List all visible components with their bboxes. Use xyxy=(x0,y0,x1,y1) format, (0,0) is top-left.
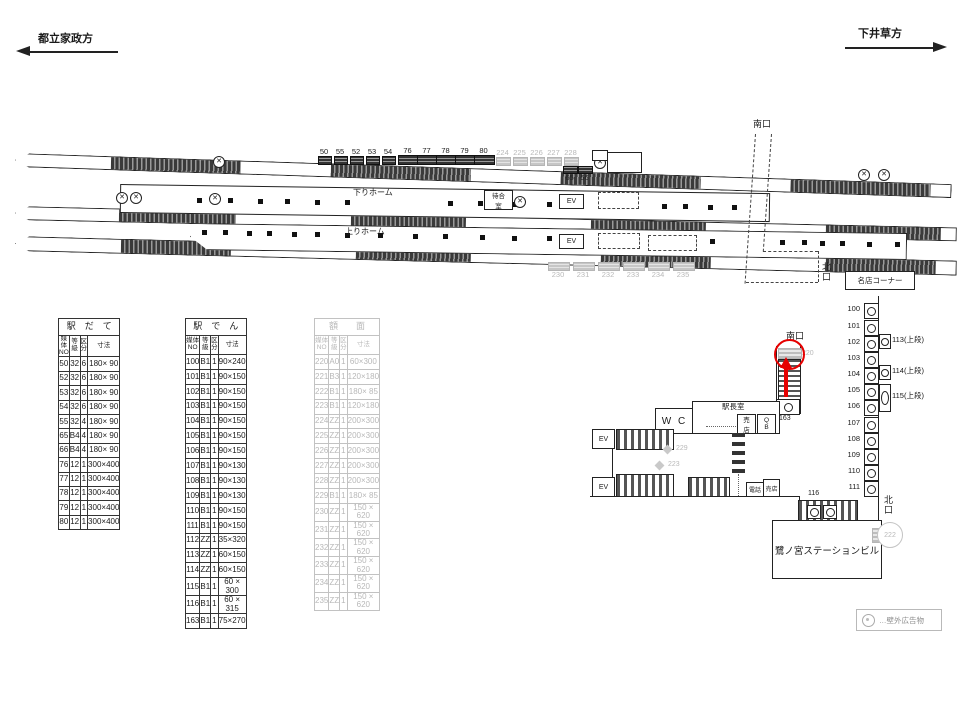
ad-position-box xyxy=(398,155,419,165)
roller-box xyxy=(807,505,821,519)
stair-opening xyxy=(648,235,697,251)
circled-x-icon xyxy=(213,156,225,168)
stairs-middle xyxy=(688,477,730,497)
roller-icon xyxy=(867,324,876,333)
upper-ad-label: 115(上段) xyxy=(892,392,924,401)
circled-x-icon xyxy=(209,193,221,205)
pillar xyxy=(292,232,297,237)
ad-number: 163 xyxy=(779,415,791,423)
ad-position-label: 65 xyxy=(565,173,573,182)
wall-ad-label: 110 xyxy=(838,467,860,476)
ad-position-label: 231 xyxy=(577,270,590,279)
ad-position-box xyxy=(366,156,380,165)
south-exit-label-platform: 南口 xyxy=(753,119,771,129)
upper-ad-label: 113(上段) xyxy=(892,336,924,345)
ad-position-label: 52 xyxy=(352,147,360,156)
ad-position-label: 234 xyxy=(652,270,665,279)
roller-icon xyxy=(867,356,876,365)
ad-position-label: 228 xyxy=(564,148,577,157)
south-corridor-dash xyxy=(818,251,819,282)
roller-icon xyxy=(784,403,793,412)
pillar xyxy=(710,239,715,244)
dotted-guide xyxy=(706,426,736,427)
ad-position-box xyxy=(474,155,495,165)
pillar xyxy=(315,200,320,205)
highlight-arrow-shaft xyxy=(784,366,788,397)
pillar xyxy=(480,235,485,240)
ad-position-box xyxy=(350,156,364,165)
ad-position-box xyxy=(318,156,332,165)
roller-icon xyxy=(867,372,876,381)
wall-ad-label: 111 xyxy=(838,483,860,492)
ad-position-box xyxy=(530,157,545,166)
ad-position-box xyxy=(382,156,396,165)
circled-x-icon xyxy=(514,196,526,208)
ad-position-label: 232 xyxy=(602,270,615,279)
phone-box: 電話 xyxy=(746,482,764,497)
pillar xyxy=(228,198,233,203)
wall-ad-box xyxy=(864,320,879,336)
ad-position-label: 50 xyxy=(320,147,328,156)
wall-ad-box xyxy=(864,481,879,497)
pillar xyxy=(197,198,202,203)
elevator-down-platform: EV xyxy=(559,194,584,209)
ad-position-label: 77 xyxy=(422,146,430,155)
roller-icon xyxy=(826,508,835,517)
roller-icon xyxy=(867,437,876,446)
upper-ad-box xyxy=(879,384,891,412)
ad-position-box xyxy=(334,156,348,165)
structure-outline xyxy=(607,152,642,173)
pillar xyxy=(315,232,320,237)
wall-ad-label: 102 xyxy=(838,338,860,347)
upper-ad-box xyxy=(879,334,891,349)
elevator-concourse-1: EV xyxy=(592,429,615,449)
pillar xyxy=(820,241,825,246)
ad-position-box xyxy=(436,155,457,165)
ad-position-box xyxy=(417,155,438,165)
ad-222-circle: 222 xyxy=(877,522,903,548)
small-structure xyxy=(592,150,608,161)
wall-ad-label: 106 xyxy=(838,402,860,411)
roller-icon xyxy=(881,369,889,377)
kiosk-box: 売 店 xyxy=(737,414,756,434)
roller-icon xyxy=(867,340,876,349)
north-exit-label-platform: 北 口 xyxy=(822,262,831,283)
pillar xyxy=(448,201,453,206)
wall-ad-label: 108 xyxy=(838,435,860,444)
pillar xyxy=(223,230,228,235)
legend-text: …壁外広告物 xyxy=(879,615,924,626)
pillar xyxy=(247,231,252,236)
wall-ad-box xyxy=(864,465,879,481)
shop-box: 売店 xyxy=(763,479,780,497)
ad-position-box xyxy=(455,155,476,165)
circled-x-icon xyxy=(130,192,142,204)
pillar xyxy=(267,231,272,236)
ad-position-label: 224 xyxy=(496,148,509,157)
ad-number-gray: 229 xyxy=(676,445,688,453)
ad-position-label: 53 xyxy=(368,147,376,156)
ad-number-gray: 222 xyxy=(884,532,896,539)
ad-position-box xyxy=(564,157,579,166)
stair-opening xyxy=(598,192,639,209)
north-exit-label-concourse: 北 口 xyxy=(884,495,893,516)
roller-icon xyxy=(867,388,876,397)
roller-icon xyxy=(867,421,876,430)
stairs-lower xyxy=(616,474,674,497)
ad-number: 116 xyxy=(808,490,819,498)
pillar xyxy=(683,204,688,209)
wall-ad-box xyxy=(864,352,879,368)
ad-position-label: 55 xyxy=(336,147,344,156)
ticket-gate xyxy=(732,433,745,437)
ad-position-label: 66 xyxy=(580,173,588,182)
pillar xyxy=(732,205,737,210)
roller-icon xyxy=(867,453,876,462)
pillar xyxy=(708,205,713,210)
gray-wedge-icon xyxy=(655,461,665,471)
ad-number-gray: 223 xyxy=(668,461,680,469)
pillar xyxy=(285,199,290,204)
pillar xyxy=(867,242,872,247)
ad-position-label: 225 xyxy=(513,148,526,157)
upper-ad-box xyxy=(879,365,891,380)
station-master-label: 駅長室 xyxy=(722,403,745,412)
roller-icon xyxy=(881,391,889,405)
concourse-map: 南口 220 163 W C 駅長室 売 店 Q B EV EV xyxy=(0,0,960,720)
roller-icon xyxy=(867,469,876,478)
pillar xyxy=(662,204,667,209)
wall-ad-box xyxy=(864,303,879,319)
ad-position-box xyxy=(513,157,528,166)
roller-icon xyxy=(881,338,889,346)
wall-ad-label: 104 xyxy=(838,370,860,379)
ticket-gate xyxy=(732,442,745,446)
wall-ad-label: 103 xyxy=(838,354,860,363)
pillar xyxy=(258,199,263,204)
south-corridor-dash xyxy=(763,251,818,252)
pillar xyxy=(802,240,807,245)
ticket-gate xyxy=(732,469,745,473)
ad-position-label: 230 xyxy=(552,270,565,279)
wall-ad-label: 107 xyxy=(838,419,860,428)
ad-position-label: 76 xyxy=(403,146,411,155)
elevator-concourse-2: EV xyxy=(592,477,615,497)
circled-x-icon xyxy=(858,169,870,181)
pillar xyxy=(547,202,552,207)
gate-line-dotted xyxy=(738,474,739,496)
ad-position-label: 226 xyxy=(530,148,543,157)
up-platform-label: 上りホーム xyxy=(345,227,385,236)
ad-position-box xyxy=(496,157,511,166)
outdoor-ad-icon xyxy=(862,614,875,627)
wall-ad-label: 101 xyxy=(838,322,860,331)
pillar xyxy=(840,241,845,246)
qb-box: Q B xyxy=(757,414,776,434)
ad-position-label: 78 xyxy=(441,146,449,155)
ad-position-label: 54 xyxy=(384,147,392,156)
wall-ad-box xyxy=(864,384,879,400)
wall-ad-label: 109 xyxy=(838,451,860,460)
pillar xyxy=(895,242,900,247)
ad-position-label: 227 xyxy=(547,148,560,157)
roller-icon xyxy=(810,508,819,517)
circled-x-icon xyxy=(878,169,890,181)
station-building: 鷺ノ宮ステーションビル xyxy=(772,520,882,579)
pillar xyxy=(345,200,350,205)
roller-icon xyxy=(867,485,876,494)
wall-ad-label: 100 xyxy=(838,305,860,314)
pillar xyxy=(547,236,552,241)
wall-ad-box xyxy=(864,449,879,465)
pillar xyxy=(478,201,483,206)
roller-box xyxy=(823,505,837,519)
ad-position-box xyxy=(547,157,562,166)
south-corridor-dash xyxy=(746,282,818,283)
roller-icon xyxy=(867,404,876,413)
ad-position-label: 235 xyxy=(677,270,690,279)
pillar xyxy=(512,236,517,241)
wall-ad-box xyxy=(864,433,879,449)
waiting-room: 待合 室 xyxy=(484,190,513,210)
wall-ad-box xyxy=(864,400,879,416)
ticket-gate xyxy=(732,460,745,464)
pillar xyxy=(780,240,785,245)
ad-position-label: 80 xyxy=(479,146,487,155)
station-media-diagram: 都立家政方 下井草方 50555253547677787980224225226… xyxy=(0,0,960,720)
ticket-gate xyxy=(732,451,745,455)
pillar xyxy=(443,234,448,239)
ad-position-label: 233 xyxy=(627,270,640,279)
pillar xyxy=(202,230,207,235)
upper-ad-label: 114(上段) xyxy=(892,367,924,376)
wall-ad-box xyxy=(864,336,879,352)
legend-box: …壁外広告物 xyxy=(856,609,942,631)
meiten-corner: 名店コーナー xyxy=(845,271,915,290)
wall-ad-box xyxy=(864,368,879,384)
circled-x-icon xyxy=(116,192,128,204)
ad-position-label: 79 xyxy=(460,146,468,155)
down-platform-label: 下りホーム xyxy=(353,188,393,197)
wall-ad-label: 105 xyxy=(838,386,860,395)
wall-ad-box xyxy=(864,417,879,433)
elevator-up-platform: EV xyxy=(559,234,584,249)
roller-icon xyxy=(867,307,876,316)
stair-opening xyxy=(598,233,640,249)
pillar xyxy=(413,234,418,239)
